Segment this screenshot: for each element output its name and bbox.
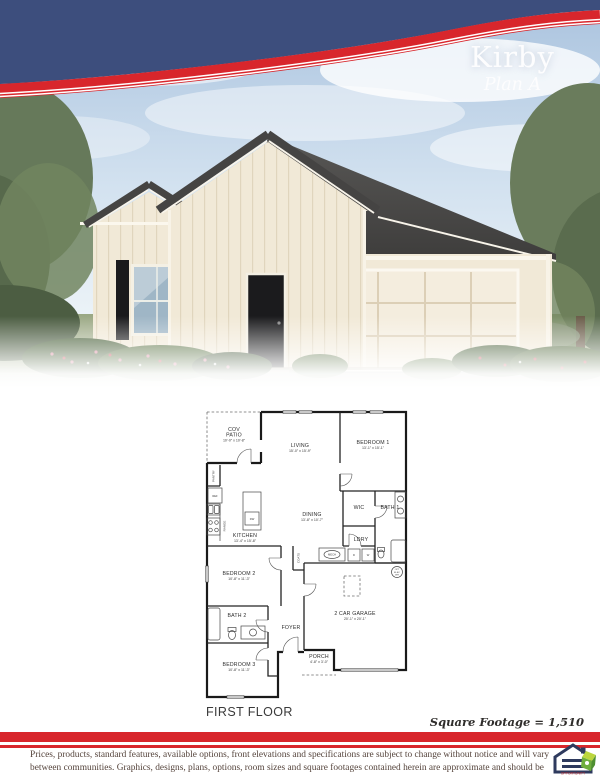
dims-kitchen: 13'-4" x 15'-8"	[234, 539, 257, 543]
label-dryer: D	[353, 553, 355, 557]
label-dw: DW	[250, 517, 255, 521]
dashed-outlines	[207, 412, 360, 675]
door-arcs	[237, 449, 387, 660]
dims-dining: 13'-8" x 10'-7"	[301, 518, 324, 522]
dims-garage: 20'-1" x 20'-1"	[344, 617, 367, 621]
plan-title: Kirby	[420, 40, 600, 74]
label-pantry: PANTRY	[212, 470, 216, 482]
label-mech: MECH	[328, 553, 336, 557]
red-band-thick	[0, 732, 600, 742]
dims-patio: 10'-0" x 10'-8"	[223, 439, 246, 443]
title-block: Kirby Plan A	[420, 40, 600, 95]
room-labels: COV PATIO 10'-0" x 10'-8" LIVING 15'-0" …	[223, 427, 400, 672]
svg-text:WH: WH	[395, 574, 399, 576]
dims-bedroom2: 10'-8" x 11'-3"	[228, 577, 251, 581]
dims-porch: 4'-8" x 3'-0"	[310, 660, 329, 664]
red-band-thin	[0, 745, 600, 748]
label-ldry: LDRY	[354, 537, 369, 543]
first-floor-label: FIRST FLOOR	[206, 705, 293, 719]
disclaimer-text: Prices, products, standard features, ava…	[30, 749, 550, 776]
utility-labels: PANTRY REF RANGE DW COATS MECH D W OPT E…	[212, 470, 401, 576]
label-washer: W	[367, 553, 370, 557]
label-bath2: BATH 2	[228, 613, 247, 619]
label-foyer: FOYER	[282, 625, 301, 631]
exterior-walls	[207, 412, 406, 697]
floor-plan: COV PATIO 10'-0" x 10'-8" LIVING 15'-0" …	[203, 408, 410, 710]
square-footage: Square Footage = 1,510	[430, 715, 584, 729]
label-bath1: BATH 1	[381, 505, 400, 511]
dims-bedroom3: 10'-8" x 11'-3"	[228, 668, 251, 672]
label-coats: COATS	[297, 553, 301, 563]
label-wic: WIC	[354, 505, 365, 511]
dims-living: 15'-0" x 15'-9"	[289, 449, 312, 453]
flyer-page: Kirby Plan A	[0, 0, 600, 776]
label-range: RANGE	[223, 521, 227, 532]
dims-bedroom1: 13'-1" x 15'-1"	[362, 446, 385, 450]
footer-logos: OPPORTUNITY	[548, 743, 598, 775]
logo-caption: OPPORTUNITY	[561, 772, 586, 775]
plan-subtitle: Plan A	[420, 75, 600, 95]
label-ref: REF	[212, 494, 218, 498]
